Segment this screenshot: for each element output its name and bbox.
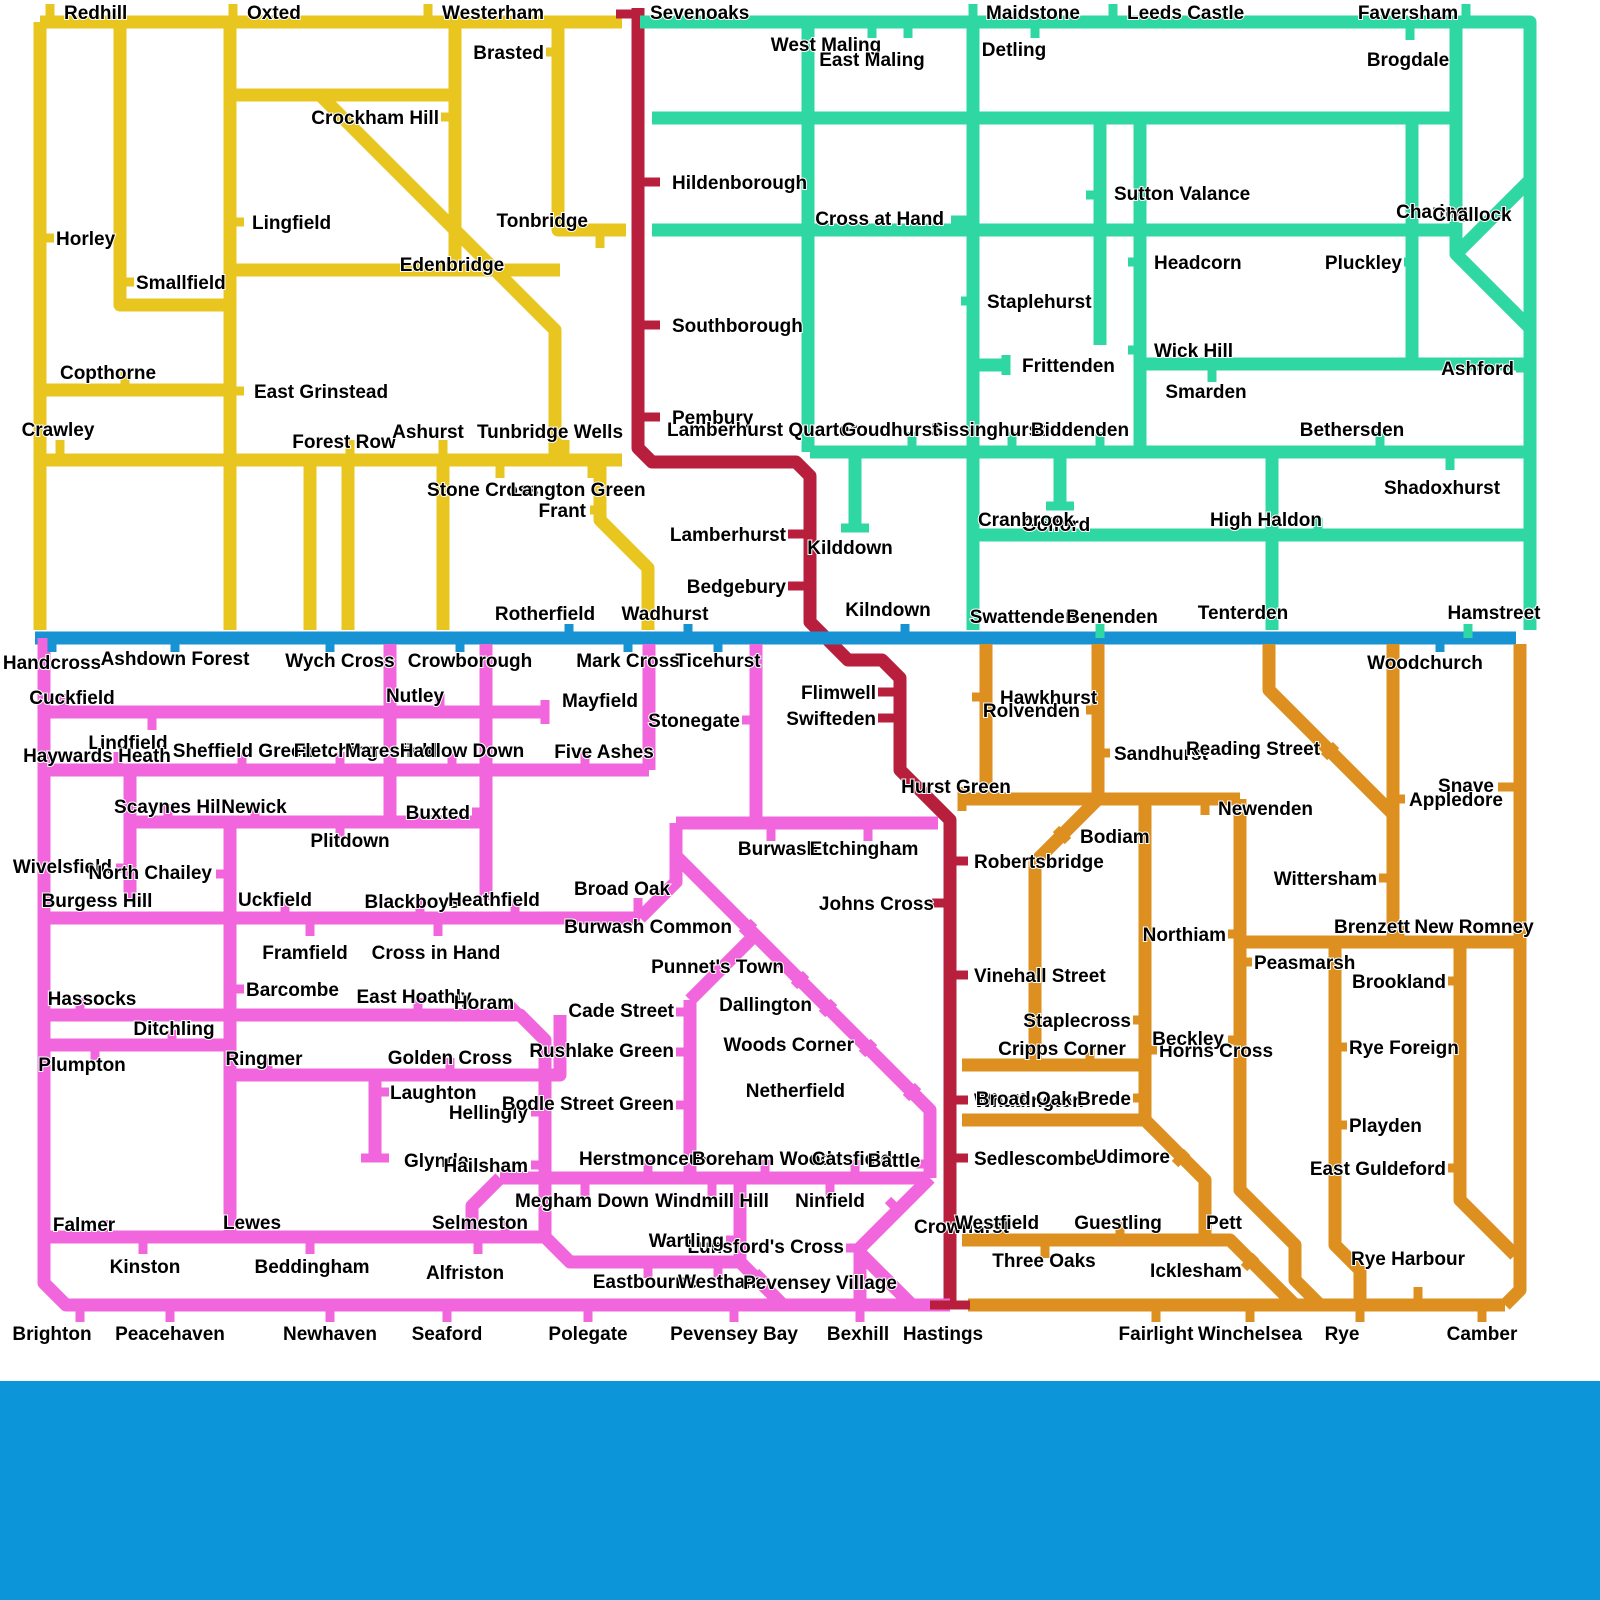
- station-label-buxted: Buxted: [406, 803, 470, 824]
- station-label-lamberhurst: Lamberhurst: [670, 525, 787, 546]
- station-label-icklesham: Icklesham: [1150, 1261, 1242, 1282]
- station-label-brasted: Brasted: [473, 43, 544, 64]
- station-label-cranbrook: Cranbrook: [978, 510, 1075, 531]
- station-label-windmill-hill: Windmill Hill: [655, 1191, 769, 1212]
- station-label-seaford: Seaford: [412, 1324, 483, 1345]
- station-label-kilndown: Kilndown: [845, 600, 930, 621]
- station-label-newenden: Newenden: [1218, 799, 1313, 820]
- station-label-scaynes-hill: Scaynes Hill: [114, 797, 226, 818]
- station-label-bethersden: Bethersden: [1300, 420, 1405, 441]
- station-label-cuckfield: Cuckfield: [29, 688, 115, 709]
- station-label-burwash-common: Burwash Common: [564, 917, 732, 938]
- route-lines: [35, 8, 1530, 1305]
- station-label-frittenden: Frittenden: [1022, 356, 1115, 377]
- station-label-netherfield: Netherfield: [746, 1081, 845, 1102]
- station-label-ditchling: Ditchling: [133, 1019, 214, 1040]
- station-label-brighton: Brighton: [12, 1324, 91, 1345]
- station-label-goudhurst: Goudhurst: [841, 420, 939, 441]
- station-label-hailsham: Hailsham: [444, 1156, 528, 1177]
- station-label-lewes: Lewes: [223, 1213, 281, 1234]
- sea-band: [0, 1381, 1600, 1600]
- station-label-etchingham: Etchingham: [810, 839, 919, 860]
- station-label-guestling: Guestling: [1074, 1213, 1162, 1234]
- station-label-oxted: Oxted: [247, 3, 301, 24]
- station-label-sedlescombe: Sedlescombe: [974, 1149, 1097, 1170]
- yellow-line-segment: [120, 22, 230, 305]
- station-label-barcombe: Barcombe: [246, 980, 339, 1001]
- map-canvas: RedhillOxtedWesterhamBrastedCrockham Hil…: [0, 0, 1600, 1600]
- station-label-edenbridge: Edenbridge: [400, 255, 505, 276]
- station-label-newick: Newick: [221, 797, 287, 818]
- station-label-megham-down: Megham Down: [515, 1191, 649, 1212]
- station-label-winchelsea: Winchelsea: [1198, 1324, 1303, 1345]
- station-label-cross-in-hand: Cross in Hand: [372, 943, 501, 964]
- station-label-hildenborough: Hildenborough: [672, 173, 807, 194]
- station-label-battle: Battle: [868, 1151, 921, 1172]
- station-label-high-haldon: High Haldon: [1210, 510, 1322, 531]
- station-label-broad-oak-brede: Broad Oak Brede: [976, 1089, 1131, 1110]
- station-label-vinehall-street: Vinehall Street: [974, 966, 1106, 987]
- orange-line-segment: [1145, 799, 1205, 1240]
- station-label-playden: Playden: [1349, 1116, 1422, 1137]
- station-label-uckfield: Uckfield: [238, 890, 312, 911]
- station-label-challock: Challock: [1432, 205, 1512, 226]
- station-label-ashford: Ashford: [1441, 359, 1514, 380]
- station-label-burgess-hill: Burgess Hill: [42, 891, 153, 912]
- station-label-robertsbridge: Robertsbridge: [974, 852, 1104, 873]
- station-label-cross-at-hand: Cross at Hand: [815, 209, 944, 230]
- station-label-sissinghurst: Sissinghurst: [930, 420, 1046, 441]
- station-label-ticehurst: Ticehurst: [675, 651, 761, 672]
- station-label-newhaven: Newhaven: [283, 1324, 377, 1345]
- station-label-brookland: Brookland: [1352, 972, 1446, 993]
- station-label-wych-cross: Wych Cross: [285, 651, 394, 672]
- station-label-wick-hill: Wick Hill: [1154, 341, 1233, 362]
- station-label-broad-oak: Broad Oak: [574, 879, 671, 900]
- yellow-line-segment: [558, 22, 626, 230]
- station-label-crawley: Crawley: [22, 420, 95, 441]
- station-label-bexhill: Bexhill: [827, 1324, 889, 1345]
- station-label-polegate: Polegate: [548, 1324, 627, 1345]
- station-label-smallfield: Smallfield: [136, 273, 226, 294]
- orange-line-segment: [1460, 942, 1515, 1255]
- station-label-ashurst: Ashurst: [392, 422, 464, 443]
- sea-rect: [0, 1381, 1600, 1600]
- station-label-golden-cross: Golden Cross: [388, 1048, 513, 1069]
- station-label-flimwell: Flimwell: [801, 683, 876, 704]
- station-label-detling: Detling: [982, 40, 1046, 61]
- transit-map: RedhillOxtedWesterhamBrastedCrockham Hil…: [0, 0, 1600, 1600]
- station-label-staplehurst: Staplehurst: [987, 292, 1092, 313]
- station-label-plumpton: Plumpton: [38, 1055, 126, 1076]
- station-label-framfield: Framfield: [262, 943, 348, 964]
- station-label-udimore: Udimore: [1093, 1147, 1170, 1168]
- station-label-hastings: Hastings: [903, 1324, 983, 1345]
- station-label-biddenden: Biddenden: [1031, 420, 1129, 441]
- yellow-line-segment: [320, 95, 555, 460]
- station-label-leeds-castle: Leeds Castle: [1127, 3, 1244, 24]
- station-label-horley: Horley: [56, 229, 116, 250]
- station-label-ringmer: Ringmer: [225, 1049, 303, 1070]
- station-label-east-maling: East Maling: [819, 50, 925, 71]
- station-label-frant: Frant: [539, 501, 587, 522]
- station-label-shadoxhurst: Shadoxhurst: [1384, 478, 1501, 499]
- station-label-crockham-hill: Crockham Hill: [311, 108, 439, 129]
- station-label-tenterden: Tenterden: [1198, 603, 1288, 624]
- station-label-horam: Horam: [454, 993, 514, 1014]
- station-label-forest-row: Forest Row: [292, 432, 396, 453]
- station-label-lamberhurst-quarter: Lamberhurst Quarter: [667, 420, 858, 441]
- station-label-new-romney: New Romney: [1414, 917, 1534, 938]
- orange-line-segment: [1505, 644, 1520, 1305]
- station-label-johns-cross: Johns Cross: [819, 894, 934, 915]
- station-label-kilddown: Kilddown: [807, 538, 892, 559]
- station-label-maidstone: Maidstone: [986, 3, 1080, 24]
- station-label-brogdale: Brogdale: [1367, 50, 1449, 71]
- station-label-pevensey-bay: Pevensey Bay: [670, 1324, 798, 1345]
- station-label-southborough: Southborough: [672, 316, 803, 337]
- station-label-ashdown-forest: Ashdown Forest: [101, 649, 251, 670]
- station-label-headcorn: Headcorn: [1154, 253, 1242, 274]
- station-label-tonbridge: Tonbridge: [497, 211, 588, 232]
- station-label-benenden: Benenden: [1066, 607, 1158, 628]
- station-label-sevenoaks: Sevenoaks: [650, 3, 749, 24]
- station-label-plitdown: Plitdown: [310, 831, 389, 852]
- station-label-bodiam: Bodiam: [1080, 827, 1150, 848]
- station-label-fairlight: Fairlight: [1119, 1324, 1195, 1345]
- station-label-laughton: Laughton: [390, 1083, 477, 1104]
- station-label-smarden: Smarden: [1165, 382, 1246, 403]
- station-label-punnet-s-town: Punnet's Town: [651, 957, 784, 978]
- station-label-staplecross: Staplecross: [1023, 1011, 1131, 1032]
- station-label-alfriston: Alfriston: [426, 1263, 504, 1284]
- station-label-rushlake-green: Rushlake Green: [529, 1041, 674, 1062]
- station-label-pevensey-village: Pevensey Village: [743, 1273, 897, 1294]
- station-label-burwash: Burwash: [738, 839, 818, 860]
- station-label-hurst-green: Hurst Green: [901, 777, 1011, 798]
- station-label-westfield: Westfield: [955, 1213, 1039, 1234]
- station-label-rotherfield: Rotherfield: [495, 604, 595, 625]
- station-label-handcross: Handcross: [3, 653, 101, 674]
- station-label-northiam: Northiam: [1143, 925, 1226, 946]
- station-label-stonegate: Stonegate: [648, 711, 740, 732]
- station-label-westerham: Westerham: [442, 3, 544, 24]
- station-label-pluckley: Pluckley: [1325, 253, 1403, 274]
- station-label-beckley: Beckley: [1152, 1029, 1224, 1050]
- station-label-camber: Camber: [1447, 1324, 1518, 1345]
- orange-line-segment: [962, 1240, 1295, 1305]
- station-label-east-grinstead: East Grinstead: [254, 382, 388, 403]
- station-label-rolvenden: Rolvenden: [983, 701, 1080, 722]
- station-label-sutton-valance: Sutton Valance: [1114, 184, 1250, 205]
- station-label-wadhurst: Wadhurst: [622, 604, 710, 625]
- station-label-wartling: Wartling: [649, 1231, 724, 1252]
- station-label-falmer: Falmer: [53, 1215, 116, 1236]
- station-label-reading-street: Reading Street: [1186, 739, 1321, 760]
- station-label-mark-cross: Mark Cross: [576, 651, 680, 672]
- station-label-haywards-heath: Haywards Heath: [23, 746, 171, 767]
- station-label-copthorne: Copthorne: [60, 363, 156, 384]
- station-label-tunbridge-wells: Tunbridge Wells: [477, 422, 623, 443]
- station-label-heathfield: Heathfield: [448, 890, 540, 911]
- station-label-swifteden: Swifteden: [786, 709, 876, 730]
- station-label-hadlow-down: Hadlow Down: [400, 741, 525, 762]
- station-ticks: [40, 4, 1530, 1322]
- station-label-appledore: Appledore: [1409, 790, 1503, 811]
- station-label-crowborough: Crowborough: [408, 651, 533, 672]
- station-label-bedgebury: Bedgebury: [687, 577, 787, 598]
- station-label-lingfield: Lingfield: [252, 213, 331, 234]
- station-label-pett: Pett: [1206, 1213, 1243, 1234]
- station-label-faversham: Faversham: [1358, 3, 1458, 24]
- station-label-rye: Rye: [1325, 1324, 1360, 1345]
- station-label-woods-corner: Woods Corner: [723, 1035, 854, 1056]
- station-label-peacehaven: Peacehaven: [115, 1324, 225, 1345]
- station-label-swattenden: Swattenden: [970, 607, 1077, 628]
- station-label-wittersham: Wittersham: [1274, 869, 1377, 890]
- station-label-selmeston: Selmeston: [432, 1213, 528, 1234]
- station-label-hassocks: Hassocks: [48, 989, 137, 1010]
- station-label-beddingham: Beddingham: [254, 1257, 369, 1278]
- station-label-sheffield-green: Sheffield Green: [173, 741, 313, 762]
- station-label-mayfield: Mayfield: [562, 691, 638, 712]
- station-label-cripps-corner: Cripps Corner: [998, 1039, 1126, 1060]
- station-label-redhill: Redhill: [64, 3, 127, 24]
- station-label-ninfield: Ninfield: [795, 1191, 865, 1212]
- station-label-cade-street: Cade Street: [568, 1001, 674, 1022]
- station-label-kinston: Kinston: [110, 1257, 181, 1278]
- station-label-rye-harbour: Rye Harbour: [1351, 1249, 1466, 1270]
- station-label-langton-green: Langton Green: [510, 480, 645, 501]
- station-label-hamstreet: Hamstreet: [1448, 603, 1542, 624]
- station-label-rye-foreign: Rye Foreign: [1349, 1038, 1459, 1059]
- station-label-five-ashes: Five Ashes: [554, 742, 654, 763]
- station-label-brenzett: Brenzett: [1334, 917, 1411, 938]
- pink-line-segment: [640, 823, 676, 918]
- station-label-three-oaks: Three Oaks: [992, 1251, 1096, 1272]
- station-label-blackboys: Blackboys: [364, 892, 459, 913]
- station-label-bodle-street-green: Bodle Street Green: [502, 1094, 674, 1115]
- station-label-east-guldeford: East Guldeford: [1310, 1159, 1446, 1180]
- station-label-dallington: Dallington: [719, 995, 812, 1016]
- station-label-peasmarsh: Peasmarsh: [1254, 953, 1355, 974]
- station-label-north-chailey: North Chailey: [88, 863, 212, 884]
- station-label-woodchurch: Woodchurch: [1367, 653, 1483, 674]
- station-label-nutley: Nutley: [386, 686, 445, 707]
